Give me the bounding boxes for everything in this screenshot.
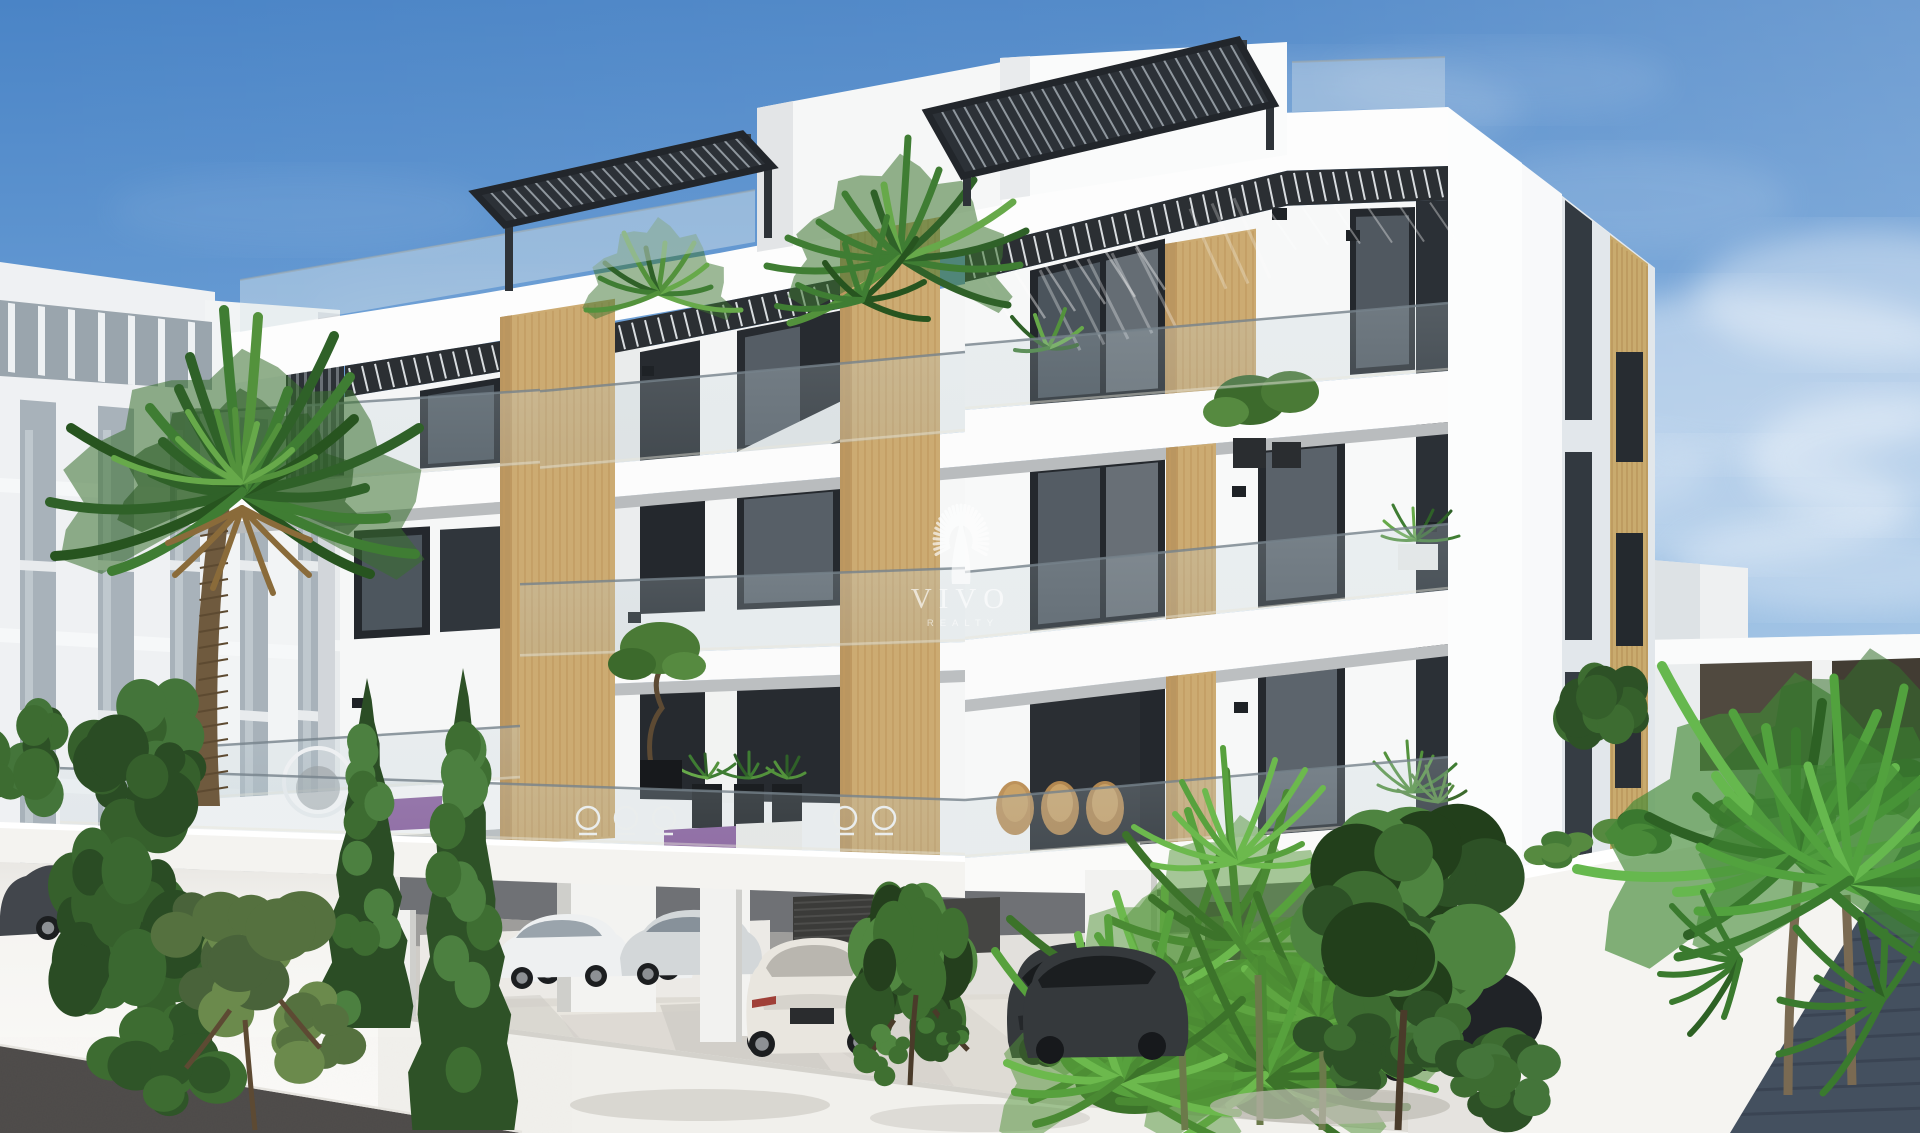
svg-text:VIVO: VIVO [911,583,1012,615]
svg-text:REALTY: REALTY [927,618,999,629]
